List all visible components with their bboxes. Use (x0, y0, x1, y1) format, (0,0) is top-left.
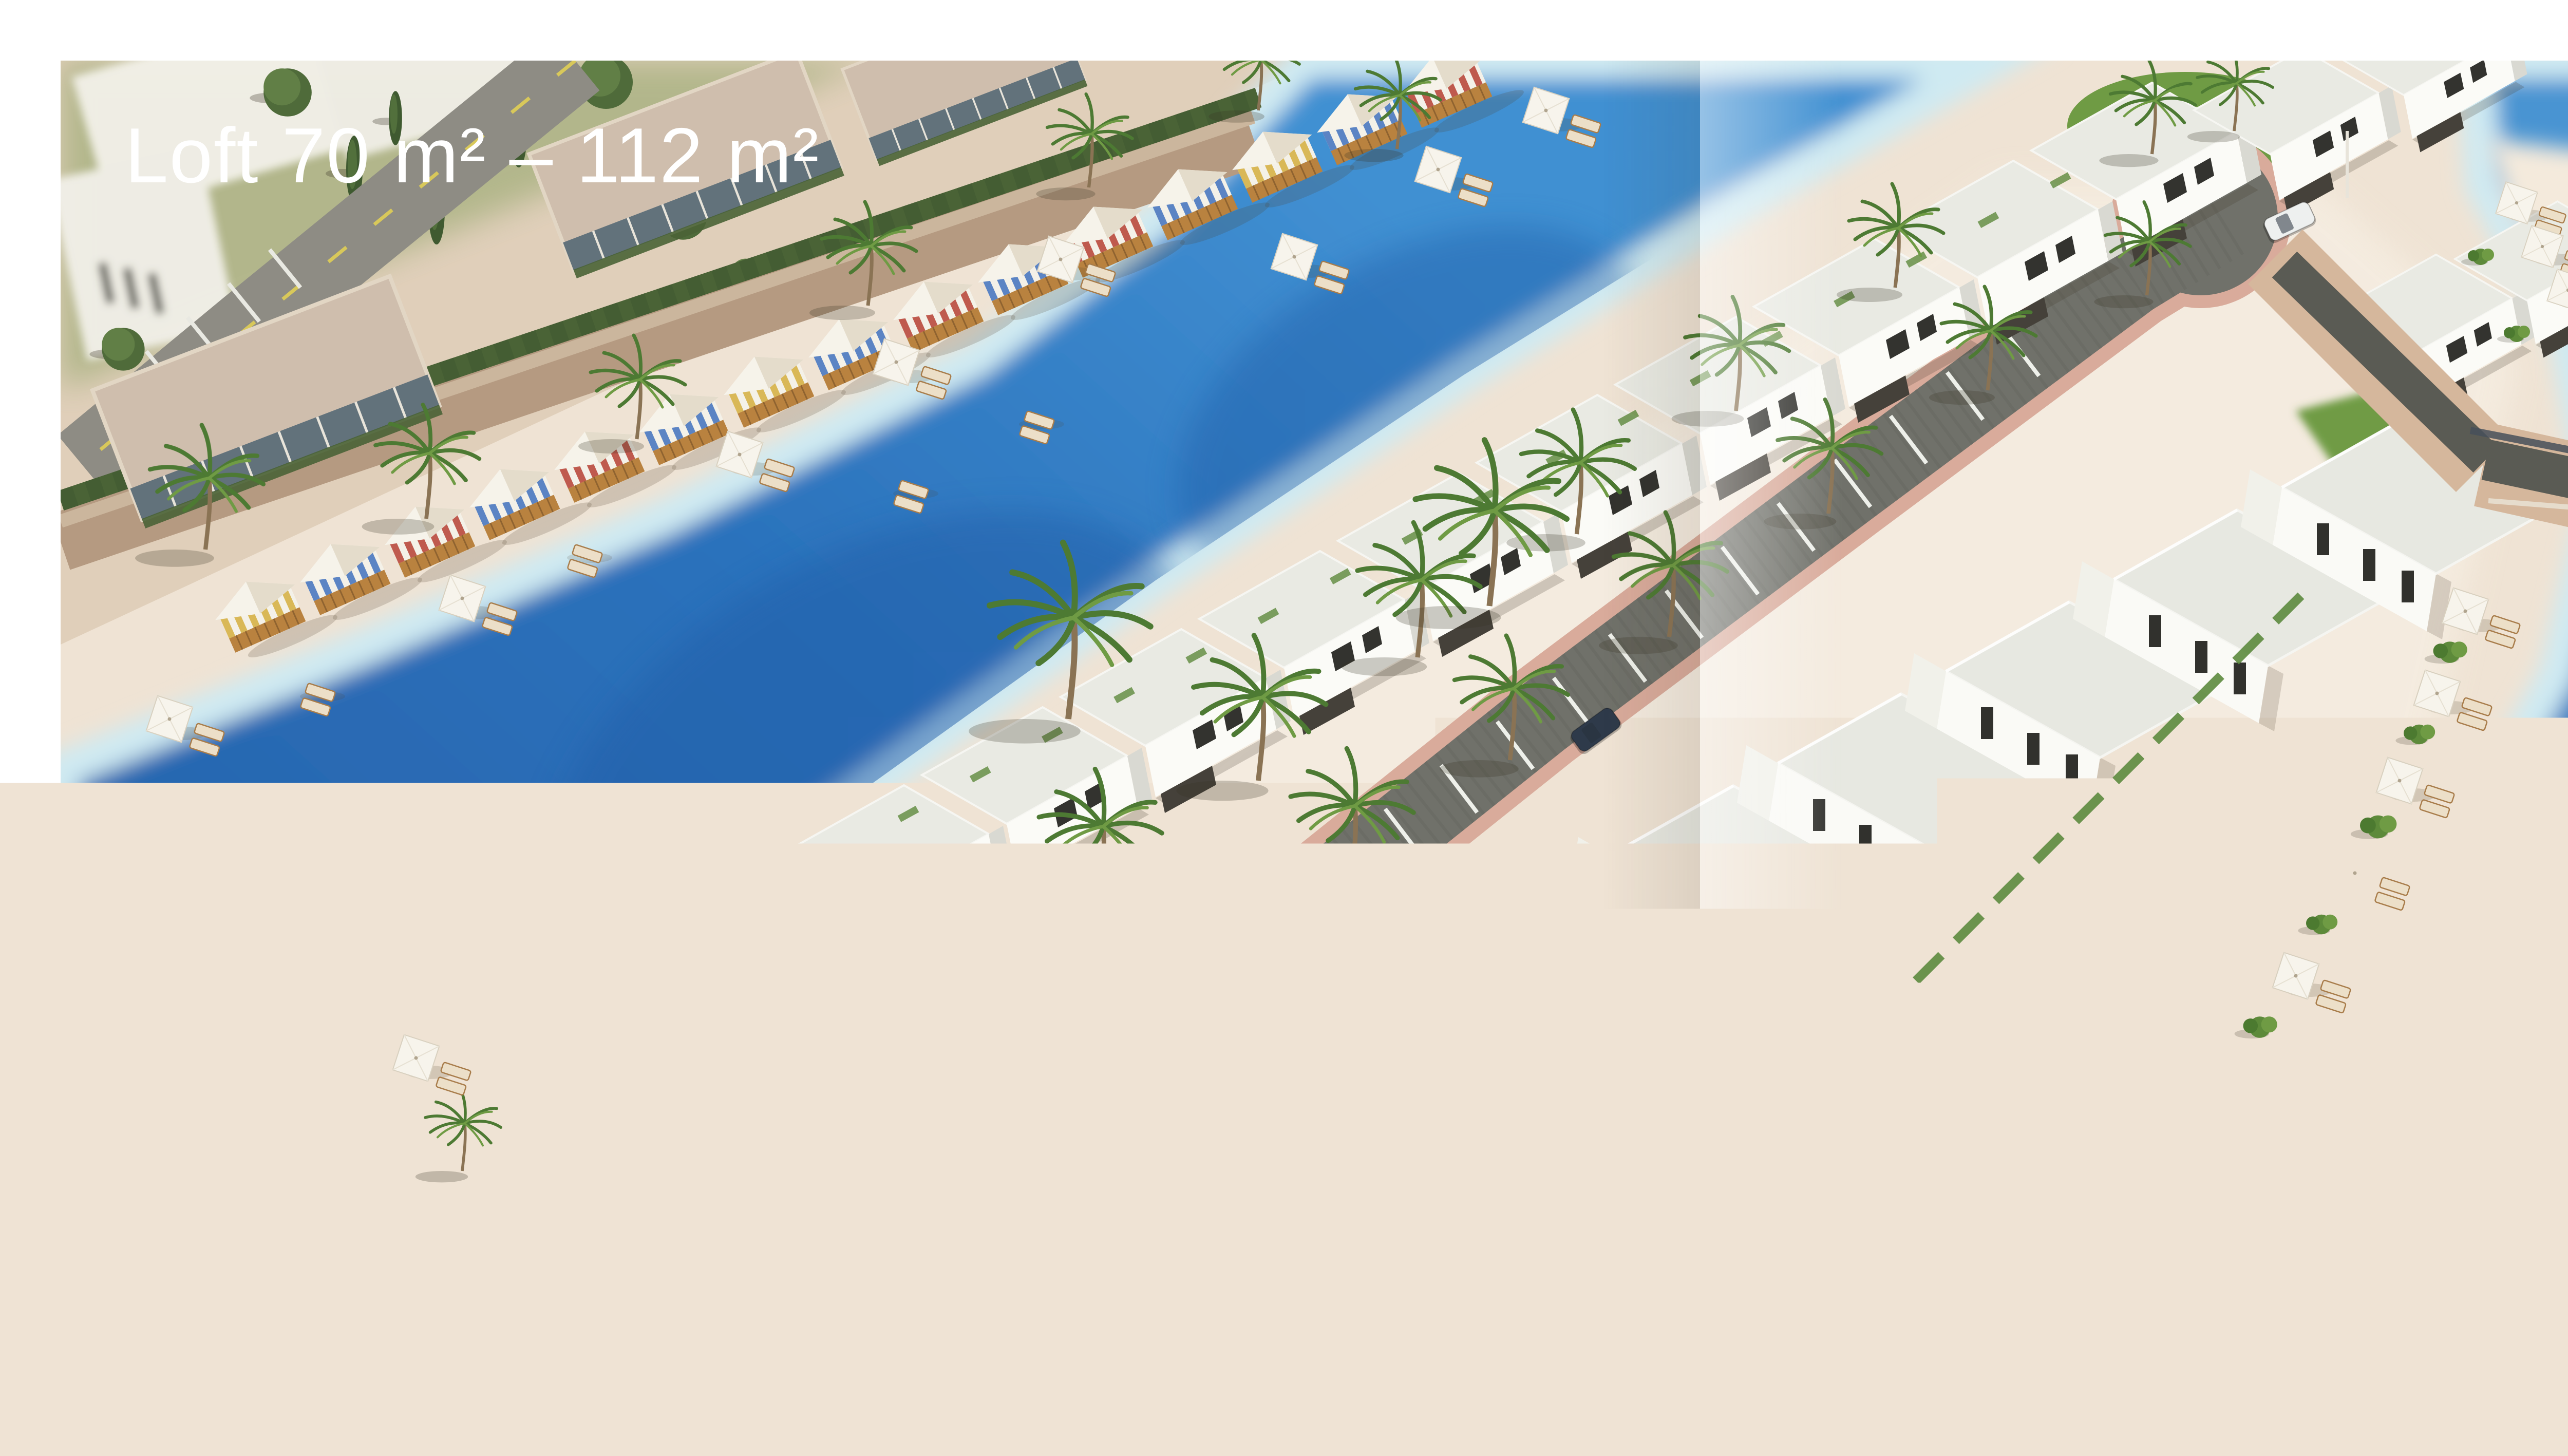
fold-highlight (1700, 61, 1844, 1394)
photo-area: Loft 70 m² – 112 m² (15, 0, 2568, 1456)
aerial-rendering: Loft 70 m² – 112 m² (0, 0, 2568, 1456)
fold-shadow (1602, 61, 1700, 1394)
margin-fold-shadow (1700, 1394, 1870, 1456)
brochure-spread: Loft 70 m² – 112 m² (0, 0, 2568, 1456)
photo-caption: Loft 70 m² – 112 m² (125, 112, 820, 199)
